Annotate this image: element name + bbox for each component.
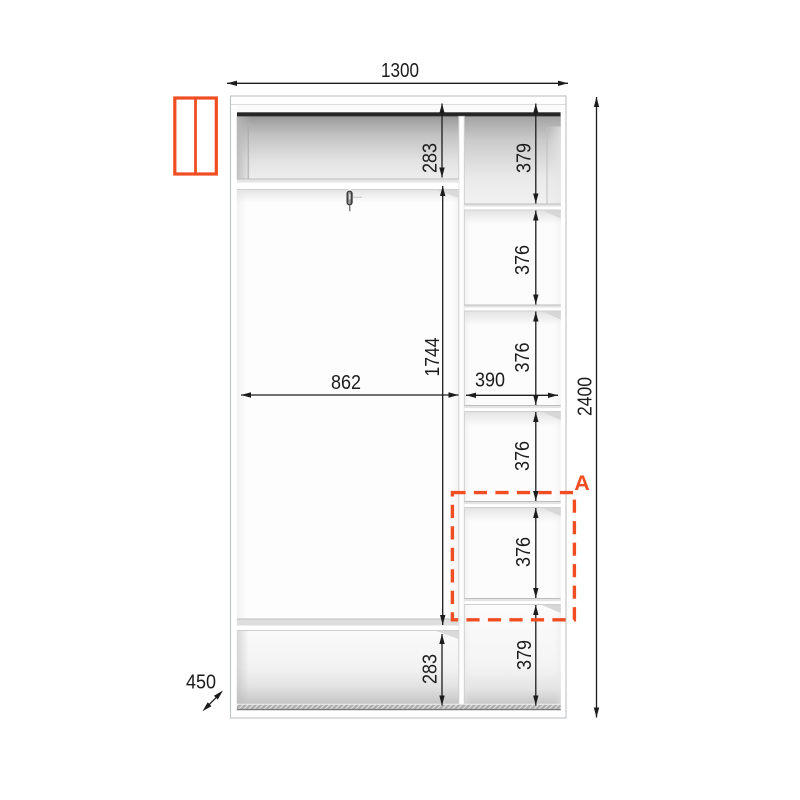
svg-text:1300: 1300 (381, 59, 419, 82)
svg-text:862: 862 (331, 371, 361, 394)
svg-text:283: 283 (419, 654, 442, 684)
svg-text:379: 379 (513, 143, 536, 173)
svg-text:379: 379 (513, 640, 536, 670)
svg-text:2400: 2400 (574, 377, 597, 416)
svg-text:450: 450 (186, 671, 216, 694)
svg-text:1744: 1744 (421, 338, 444, 377)
svg-text:376: 376 (511, 245, 534, 275)
svg-text:376: 376 (512, 537, 535, 567)
svg-text:376: 376 (511, 441, 534, 471)
svg-text:376: 376 (511, 343, 534, 373)
svg-text:A: A (574, 471, 590, 495)
svg-text:283: 283 (419, 143, 442, 173)
svg-text:390: 390 (475, 369, 505, 392)
